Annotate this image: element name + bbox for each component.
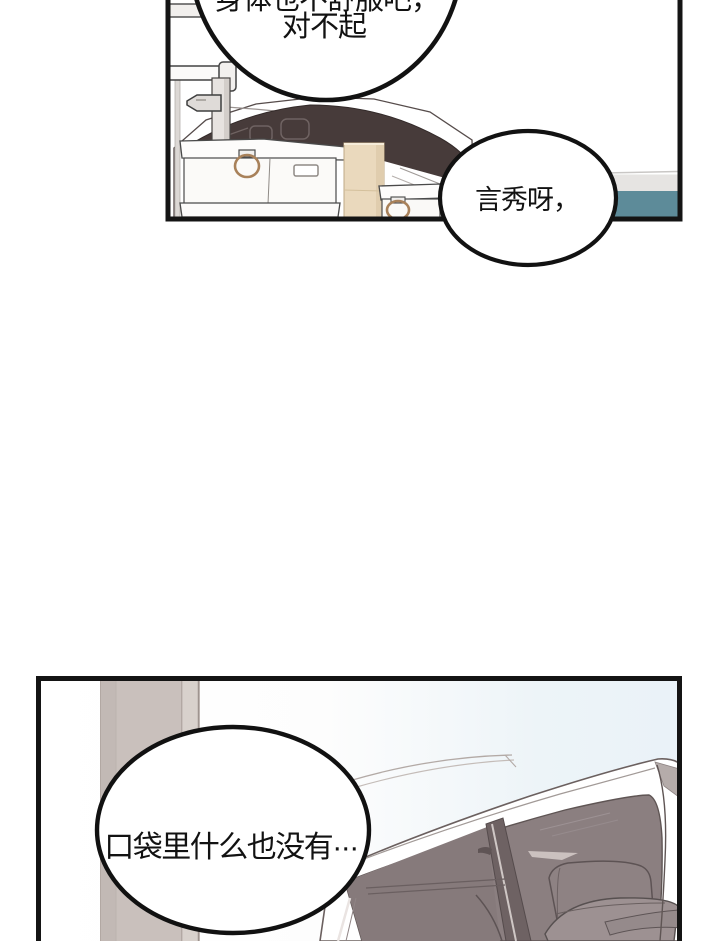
speech-bubble-bottom bbox=[97, 727, 369, 933]
bottom-panel-scene: 口袋里什么也没有··· bbox=[41, 681, 683, 941]
speech-bubble-bottom-text: 口袋里什么也没有··· bbox=[104, 831, 357, 864]
box-label-plate bbox=[294, 165, 318, 176]
comic-page: 言秀呀， 身体也不舒服吧， 对不起 bbox=[0, 0, 720, 941]
storage-box-lid-lower bbox=[180, 203, 340, 217]
cart-clip-tag bbox=[187, 95, 221, 111]
speech-bubble-side-text: 言秀呀， bbox=[475, 185, 579, 215]
cart-left-rail bbox=[175, 80, 180, 220]
storage-box-lid-right bbox=[379, 184, 443, 200]
comic-artwork: 言秀呀， 身体也不舒服吧， 对不起 bbox=[0, 0, 720, 941]
speech-bubble-main-line2: 对不起 bbox=[282, 10, 367, 43]
